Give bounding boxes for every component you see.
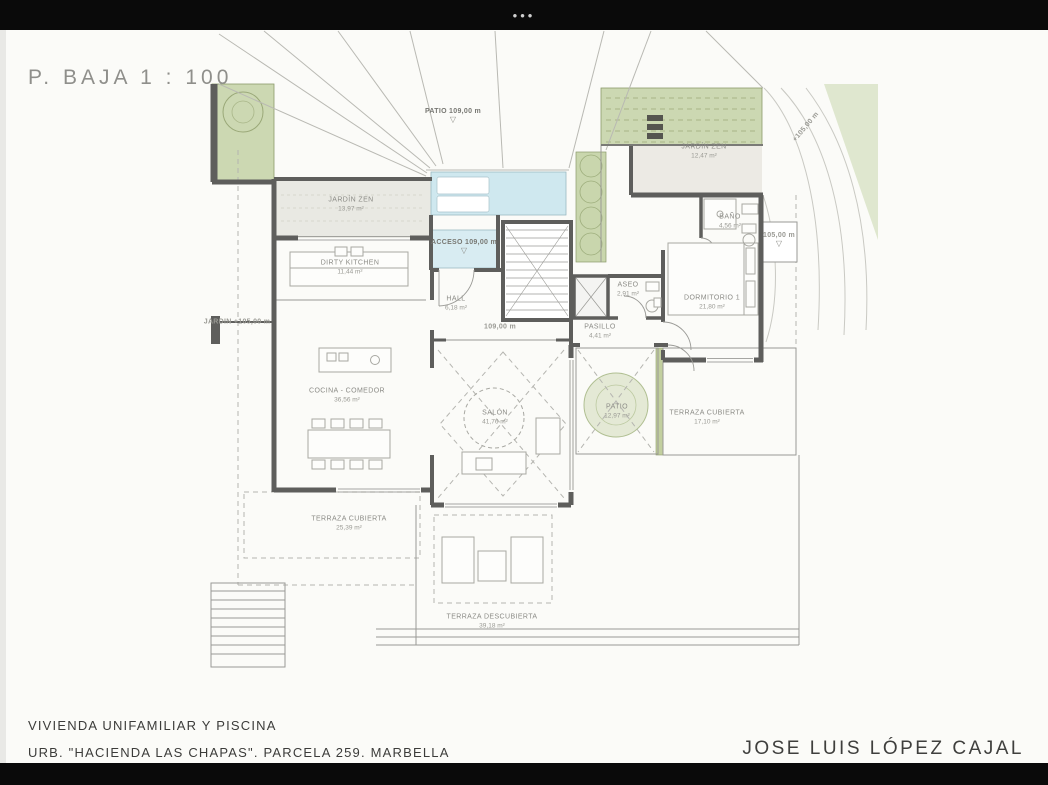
architect-name: JOSE LUIS LÓPEZ CAJAL <box>742 738 1024 760</box>
level-mark-jardin: JARDIN +105,00 m <box>204 319 270 326</box>
project-title: VIVIENDA UNIFAMILIAR Y PISCINA <box>28 718 450 733</box>
project-address: URB. "HACIENDA LAS CHAPAS". PARCELA 259.… <box>28 745 450 760</box>
floorplan-drawing <box>6 30 1048 763</box>
level-mark-acceso: ACCESO 109,00 m ▽ <box>431 239 497 255</box>
level-mark-stair: 109,00 m <box>484 324 516 331</box>
top-letterbox-bar: ••• <box>0 0 1048 30</box>
level-triangle-icon: ▽ <box>431 247 497 255</box>
level-mark-terraza: 105,00 m ▽ <box>763 232 795 248</box>
level-triangle-icon: ▽ <box>763 240 795 248</box>
level-triangle-icon: ▽ <box>425 116 481 124</box>
titleblock-left: VIVIENDA UNIFAMILIAR Y PISCINA URB. "HAC… <box>28 718 450 760</box>
menu-dots-icon[interactable]: ••• <box>513 9 536 22</box>
sheet-title: P. BAJA 1 : 100 <box>28 66 232 90</box>
bottom-letterbox-bar <box>0 763 1048 785</box>
level-mark-patio: PATIO 109,00 m ▽ <box>425 108 481 124</box>
drawing-sheet: P. BAJA 1 : 100 JARDÍN ZEN 13,97 m² DIRT… <box>0 30 1048 763</box>
screenshot-root: ••• <box>0 0 1048 785</box>
